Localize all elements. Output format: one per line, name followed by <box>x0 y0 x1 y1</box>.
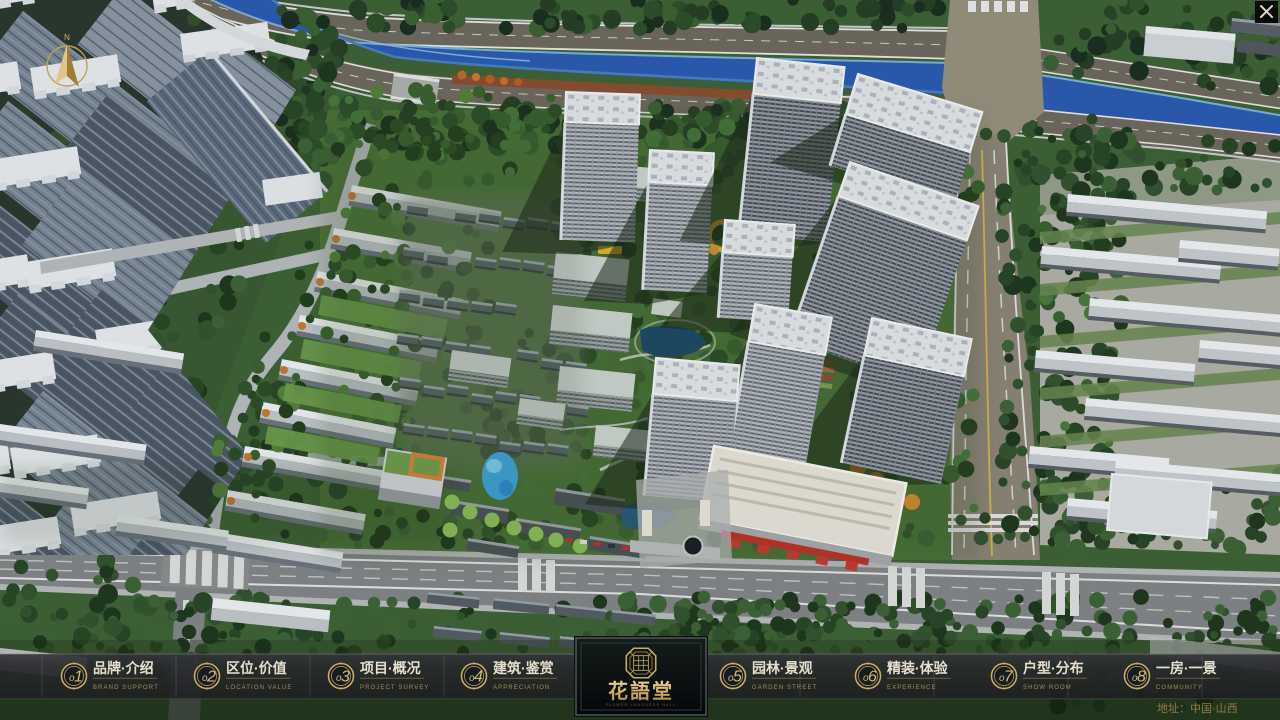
svg-text:EXPERIENCE: EXPERIENCE <box>887 685 937 691</box>
svg-text:区位·价值: 区位·价值 <box>226 660 287 676</box>
svg-text:PROJECT SURVEY: PROJECT SURVEY <box>360 685 430 691</box>
svg-text:6: 6 <box>868 669 877 686</box>
svg-text:一房·一景: 一房·一景 <box>1156 660 1217 676</box>
svg-text:LOCATION VALUE: LOCATION VALUE <box>226 685 293 691</box>
svg-text:园林·景观: 园林·景观 <box>752 660 813 676</box>
svg-text:项目·概况: 项目·概况 <box>360 660 421 676</box>
svg-text:精装·体验: 精装·体验 <box>887 660 949 676</box>
svg-text:建筑·鉴赏: 建筑·鉴赏 <box>493 660 554 676</box>
svg-text:1: 1 <box>74 669 83 686</box>
svg-text:品牌·介绍: 品牌·介绍 <box>93 660 154 676</box>
svg-text:花語堂: 花語堂 <box>608 679 674 703</box>
svg-text:COMMUNITY: COMMUNITY <box>1156 685 1203 691</box>
svg-text:户型·分布: 户型·分布 <box>1023 660 1084 676</box>
svg-text:7: 7 <box>1004 669 1014 686</box>
svg-text:4: 4 <box>474 669 483 686</box>
svg-text:5: 5 <box>733 669 742 686</box>
svg-text:2: 2 <box>206 669 216 686</box>
svg-text:SHOW ROOM: SHOW ROOM <box>1023 685 1072 691</box>
svg-text:GARDEN STREET: GARDEN STREET <box>752 685 817 691</box>
svg-text:APPRECIATION: APPRECIATION <box>493 685 550 691</box>
svg-text:地址：中国·山西: 地址：中国·山西 <box>1157 701 1238 715</box>
svg-text:FLOWER LANGUAGE HALL: FLOWER LANGUAGE HALL <box>606 703 676 707</box>
svg-text:BRAND SUPPORT: BRAND SUPPORT <box>93 685 159 691</box>
svg-text:3: 3 <box>341 669 350 686</box>
svg-text:8: 8 <box>1137 669 1146 686</box>
